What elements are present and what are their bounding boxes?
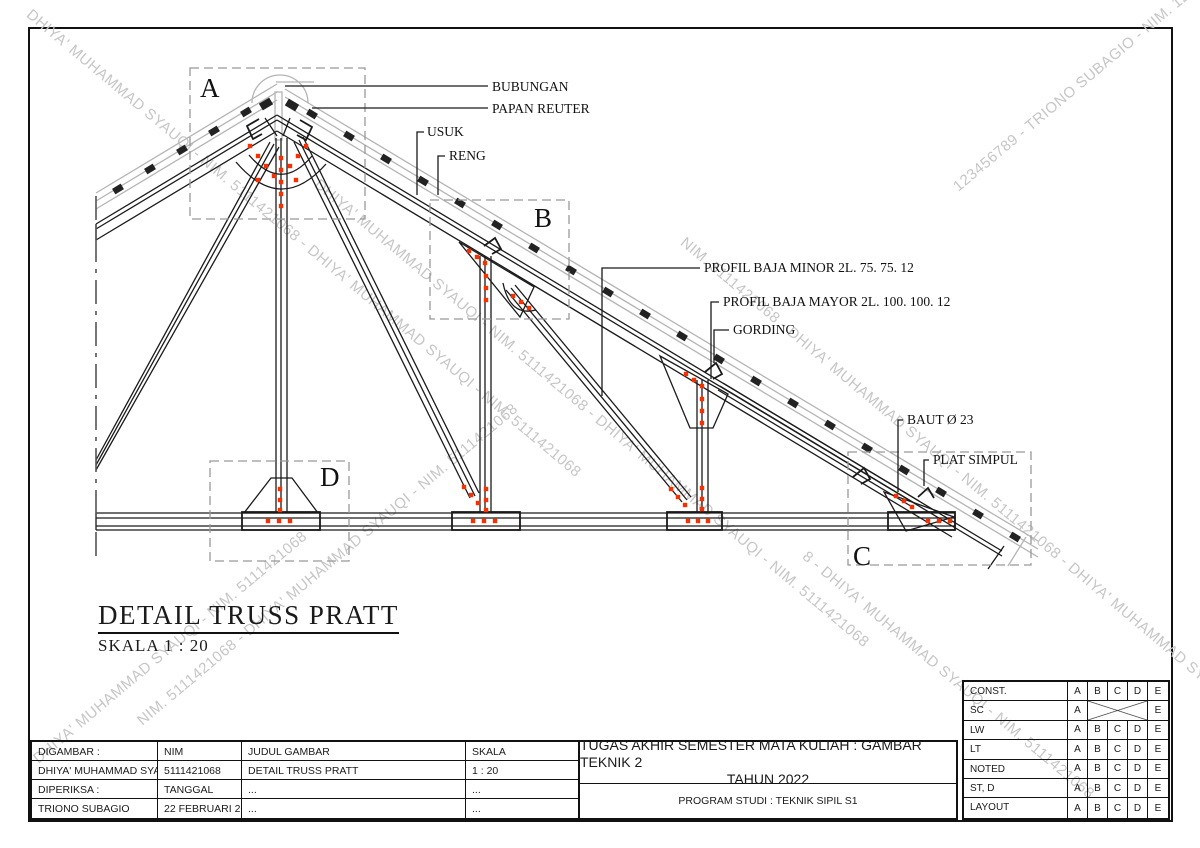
- top-chord-right: [277, 115, 1004, 569]
- rev-cell: B: [1088, 760, 1108, 779]
- rev-cell: C: [1108, 721, 1128, 740]
- drawing-sheet: DHIYA' MUHAMMAD SYAUQI - NIM. 5111421068…: [0, 0, 1200, 848]
- plates-and-gussets: [236, 118, 955, 531]
- diagonal-left: [96, 142, 279, 470]
- rev-cell: A: [1068, 721, 1088, 740]
- diagonal-right-2: [506, 285, 691, 502]
- rev-label: NOTED: [964, 760, 1068, 779]
- tb-nim-value: 5111421068: [158, 761, 242, 780]
- tb-cell: ...: [466, 799, 578, 818]
- tb-tanggal-value: 22 FEBRUARI 2022: [158, 799, 242, 818]
- ridge-cap: [252, 75, 314, 103]
- rev-label: ST, D: [964, 779, 1068, 798]
- label-baut: BAUT Ø 23: [907, 412, 974, 427]
- tb-judul-label: JUDUL GAMBAR: [242, 742, 466, 761]
- rev-cell: C: [1108, 682, 1128, 701]
- rev-cell-crossed: [1088, 701, 1148, 720]
- base-plate: [667, 512, 722, 530]
- label-plat-simpul: PLAT SIMPUL: [933, 452, 1018, 467]
- tb-diperiksa-label: DIPERIKSA :: [32, 780, 158, 799]
- rev-cell: A: [1068, 701, 1088, 720]
- rev-label: CONST.: [964, 682, 1068, 701]
- course-title-line2: TAHUN 2022: [727, 771, 809, 788]
- rev-cell: B: [1088, 682, 1108, 701]
- rev-label: LT: [964, 740, 1068, 759]
- detail-letter-d: D: [320, 462, 340, 492]
- rev-cell: B: [1088, 721, 1108, 740]
- tb-diperiksa-value: TRIONO SUBAGIO: [32, 799, 158, 818]
- rev-cell: D: [1128, 760, 1148, 779]
- title-block-center: TUGAS AKHIR SEMESTER MATA KULIAH : GAMBA…: [580, 740, 958, 820]
- reng-battens: [112, 98, 1021, 543]
- rev-cell: E: [1148, 701, 1168, 720]
- detail-letter-a: A: [200, 73, 220, 103]
- label-bubungan: BUBUNGAN: [492, 79, 569, 94]
- label-profil-minor: PROFIL BAJA MINOR 2L. 75. 75. 12: [704, 260, 914, 275]
- rev-cell: C: [1108, 798, 1128, 817]
- rev-cell: A: [1068, 682, 1088, 701]
- program-studi: PROGRAM STUDI : TEKNIK SIPIL S1: [580, 783, 956, 818]
- label-reng: RENG: [449, 148, 486, 163]
- rev-cell: B: [1088, 779, 1108, 798]
- tb-cell: ...: [242, 799, 466, 818]
- rev-cell: A: [1068, 798, 1088, 817]
- title-block-left: DIGAMBAR : NIM JUDUL GAMBAR SKALA DHIYA'…: [30, 740, 580, 820]
- tb-cell: ...: [466, 780, 578, 799]
- vertical-web-2: [480, 256, 491, 512]
- detail-box-c: [848, 452, 1031, 565]
- tb-skala-value: 1 : 20: [466, 761, 578, 780]
- tb-digambar-label: DIGAMBAR :: [32, 742, 158, 761]
- rev-cell: A: [1068, 740, 1088, 759]
- rev-cell: E: [1148, 798, 1168, 817]
- rev-cell: A: [1068, 760, 1088, 779]
- rev-label: SC: [964, 701, 1068, 720]
- rev-cell: D: [1128, 779, 1148, 798]
- bottom-chord: [96, 513, 955, 530]
- tb-nim-label: NIM: [158, 742, 242, 761]
- tb-digambar-value: DHIYA' MUHAMMAD SYAUQI: [32, 761, 158, 780]
- rev-cell: C: [1108, 740, 1128, 759]
- rev-cell: B: [1088, 798, 1108, 817]
- course-title: TUGAS AKHIR SEMESTER MATA KULIAH : GAMBA…: [580, 742, 956, 783]
- detail-letter-c: C: [853, 541, 871, 571]
- rev-cell: D: [1128, 721, 1148, 740]
- tb-cell: ...: [242, 780, 466, 799]
- rev-cell: B: [1088, 740, 1108, 759]
- drawing-title: DETAIL TRUSS PRATT: [98, 600, 399, 634]
- bolts: [248, 144, 952, 523]
- rev-cell: D: [1128, 740, 1148, 759]
- diagonal-right-1: [294, 137, 479, 498]
- rev-cell: A: [1068, 779, 1088, 798]
- label-usuk: USUK: [427, 124, 464, 139]
- rev-cell: D: [1128, 682, 1148, 701]
- rev-cell: E: [1148, 779, 1168, 798]
- label-gording: GORDING: [733, 322, 795, 337]
- detail-letter-b: B: [534, 203, 552, 233]
- rev-cell: C: [1108, 760, 1128, 779]
- diagonal-right-3: [718, 383, 919, 508]
- rev-cell: E: [1148, 740, 1168, 759]
- rev-label: LW: [964, 721, 1068, 740]
- tb-tanggal-label: TANGGAL: [158, 780, 242, 799]
- rev-cell: C: [1108, 779, 1128, 798]
- truss-members: [96, 115, 1004, 569]
- rev-cell: E: [1148, 760, 1168, 779]
- rev-cell: D: [1128, 798, 1148, 817]
- truss-drawing: A B C D BUBUNGAN PAPAN REUTER USUK RENG …: [0, 0, 1200, 700]
- rev-cell: E: [1148, 721, 1168, 740]
- tb-skala-label: SKALA: [466, 742, 578, 761]
- course-title-line1: TUGAS AKHIR SEMESTER MATA KULIAH : GAMBA…: [580, 737, 956, 771]
- label-profil-mayor: PROFIL BAJA MAYOR 2L. 100. 100. 12: [723, 294, 950, 309]
- revision-table: CONST. A B C D E SC A E LW A B C D E LT …: [962, 680, 1170, 820]
- rev-label: LAYOUT: [964, 798, 1068, 817]
- rev-cell: E: [1148, 682, 1168, 701]
- drawing-scale: SKALA 1 : 20: [98, 636, 209, 656]
- label-papan-reuter: PAPAN REUTER: [492, 101, 590, 116]
- tb-judul-value: DETAIL TRUSS PRATT: [242, 761, 466, 780]
